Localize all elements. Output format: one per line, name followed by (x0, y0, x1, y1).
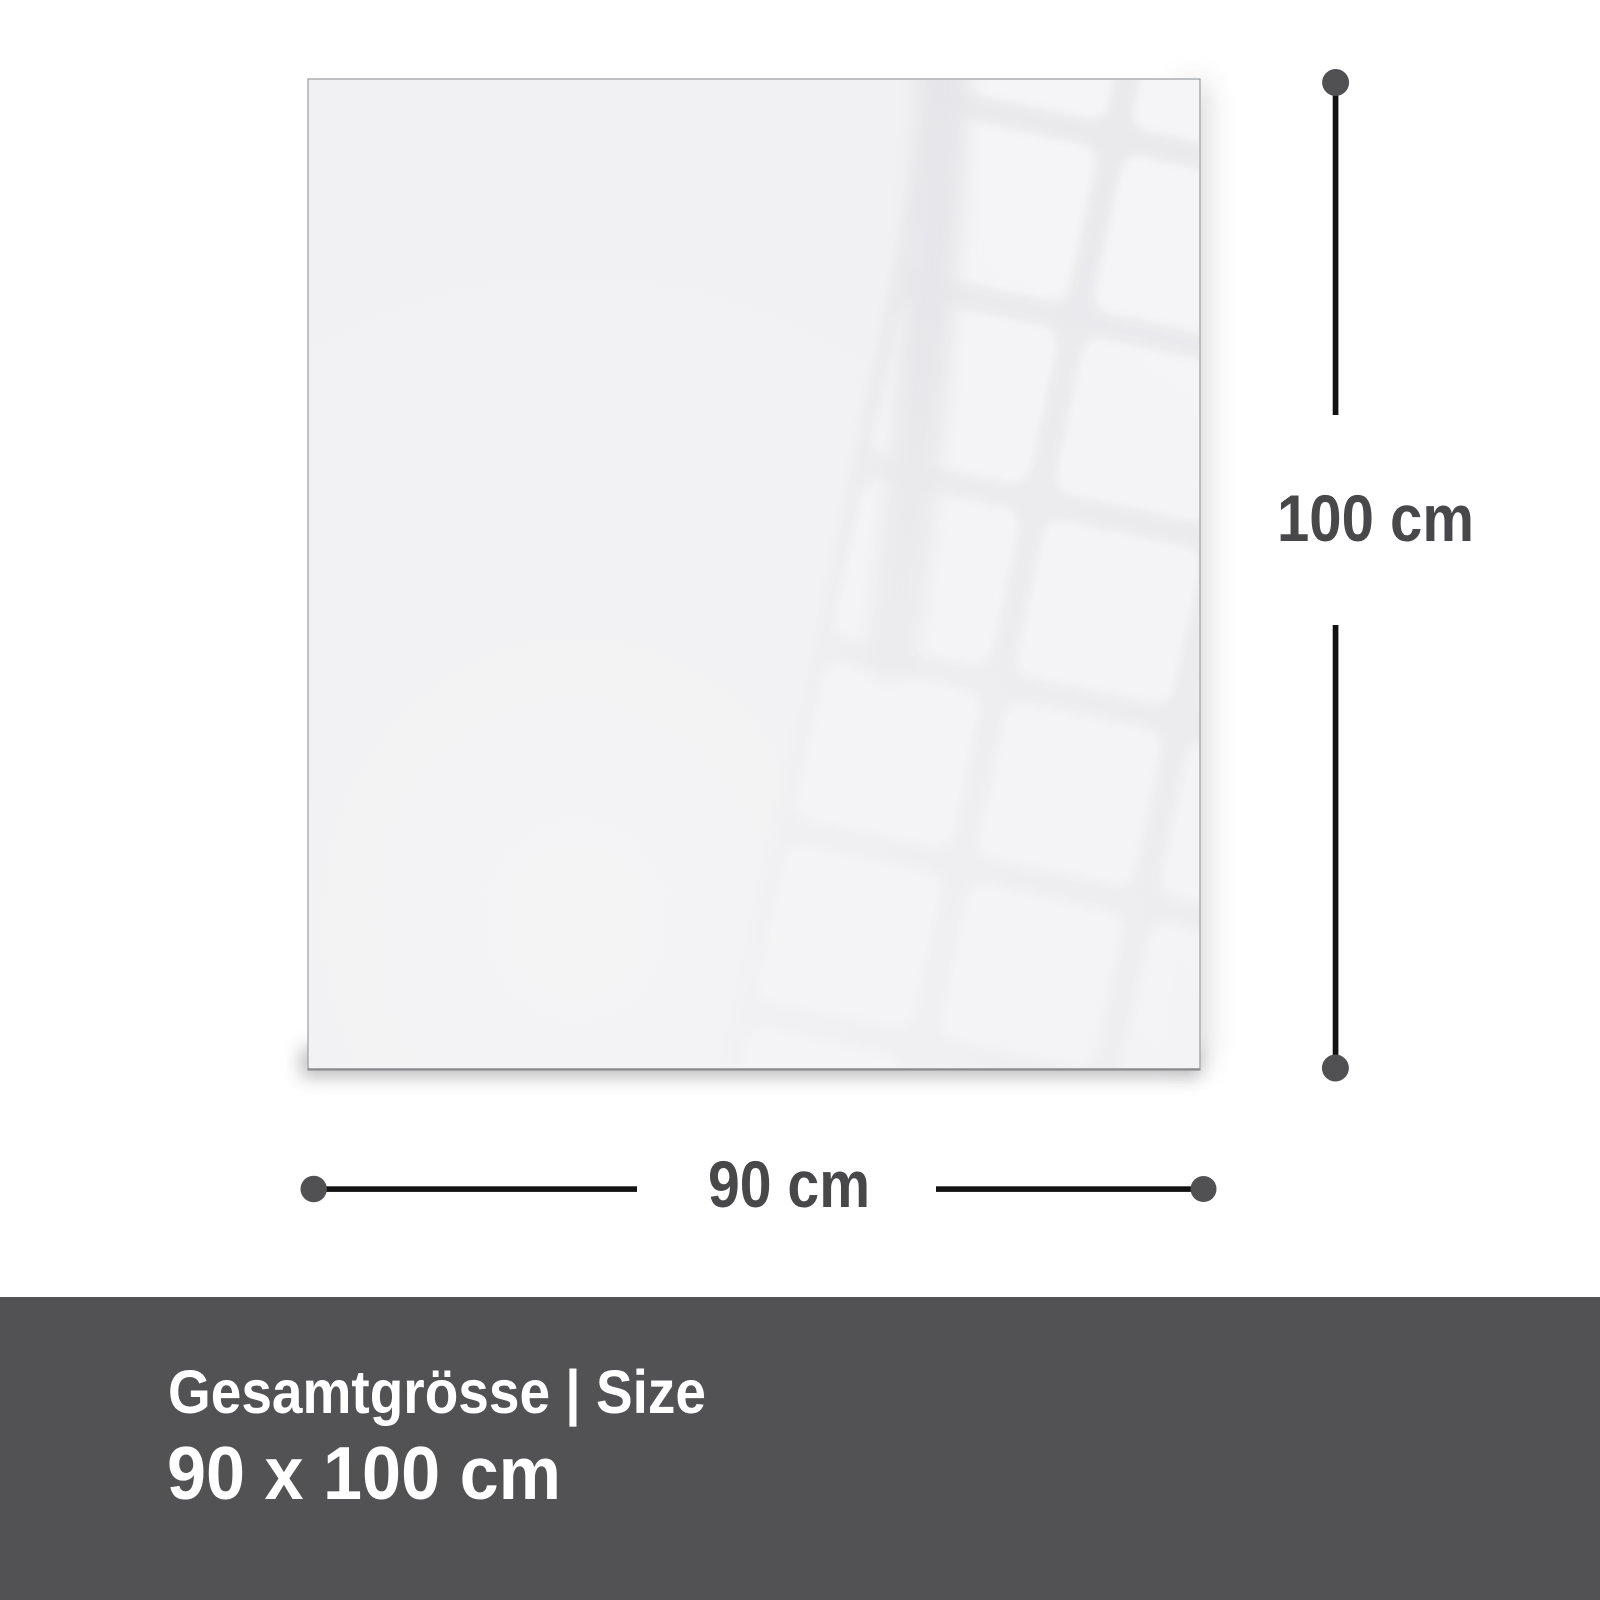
svg-text:100 cm: 100 cm (1277, 481, 1474, 555)
svg-text:90 cm: 90 cm (708, 1147, 870, 1221)
svg-text:90 x 100 cm: 90 x 100 cm (167, 1431, 561, 1515)
svg-text:Gesamtgrösse | Size: Gesamtgrösse | Size (168, 1358, 706, 1428)
